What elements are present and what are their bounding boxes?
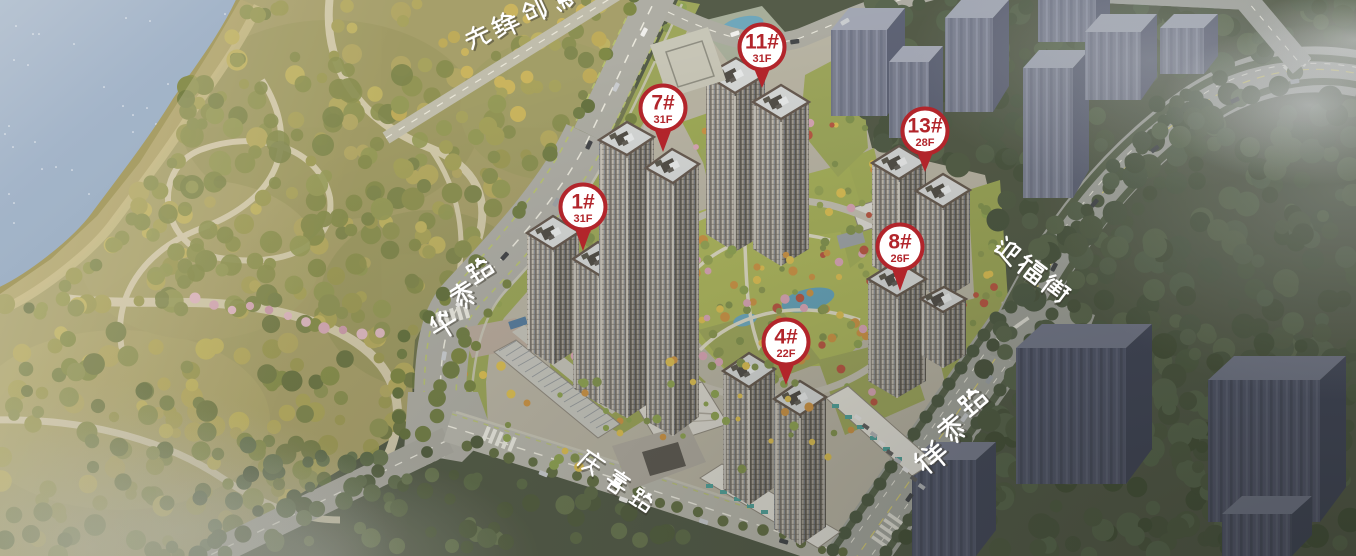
svg-text:7#: 7# xyxy=(651,92,675,115)
svg-text:22F: 22F xyxy=(777,348,796,360)
svg-text:4#: 4# xyxy=(774,326,798,349)
svg-text:28F: 28F xyxy=(916,137,935,149)
svg-text:31F: 31F xyxy=(574,213,593,225)
svg-text:8#: 8# xyxy=(888,231,912,254)
svg-text:31F: 31F xyxy=(654,114,673,126)
svg-text:11#: 11# xyxy=(745,31,779,54)
svg-text:31F: 31F xyxy=(753,53,772,65)
svg-text:26F: 26F xyxy=(891,253,910,265)
svg-text:13#: 13# xyxy=(907,115,942,138)
svg-text:1#: 1# xyxy=(571,191,595,214)
